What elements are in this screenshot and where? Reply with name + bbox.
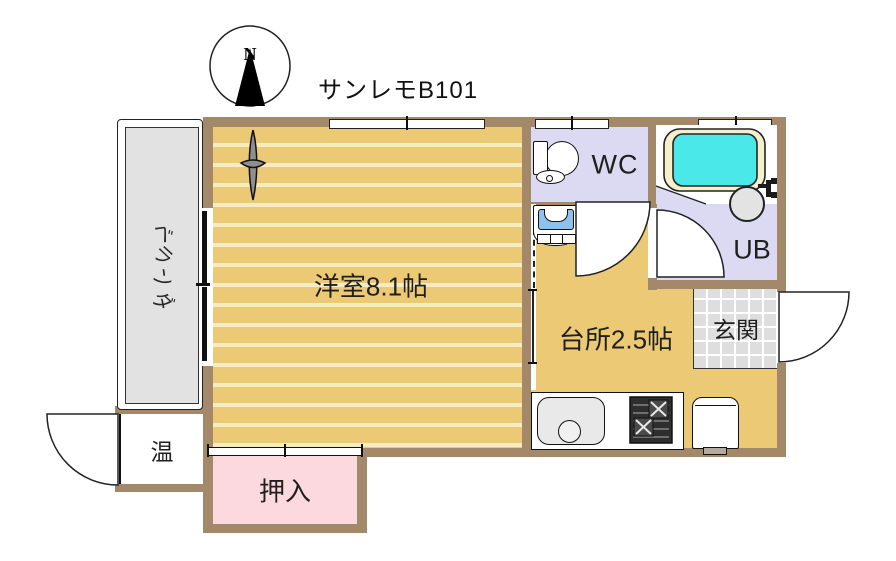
- unit-bath-label: UB: [733, 235, 771, 266]
- door-arcs: [0, 0, 896, 561]
- heater-label: 温: [151, 433, 174, 467]
- closet-label: 押入: [259, 472, 311, 509]
- entrance-label: 玄関: [713, 311, 759, 345]
- wc-label: WC: [592, 150, 639, 181]
- door-arc-wc: [576, 202, 650, 276]
- door-arc-bath: [657, 210, 724, 277]
- floor-plan: N サンレモB101 ベ ラ ン ダ: [0, 0, 896, 561]
- kitchen-label: 台所2.5帖: [559, 320, 673, 357]
- western-room-label: 洋室8.1帖: [314, 267, 428, 304]
- door-arc-heater: [47, 414, 118, 485]
- door-arc-entrance: [779, 292, 849, 362]
